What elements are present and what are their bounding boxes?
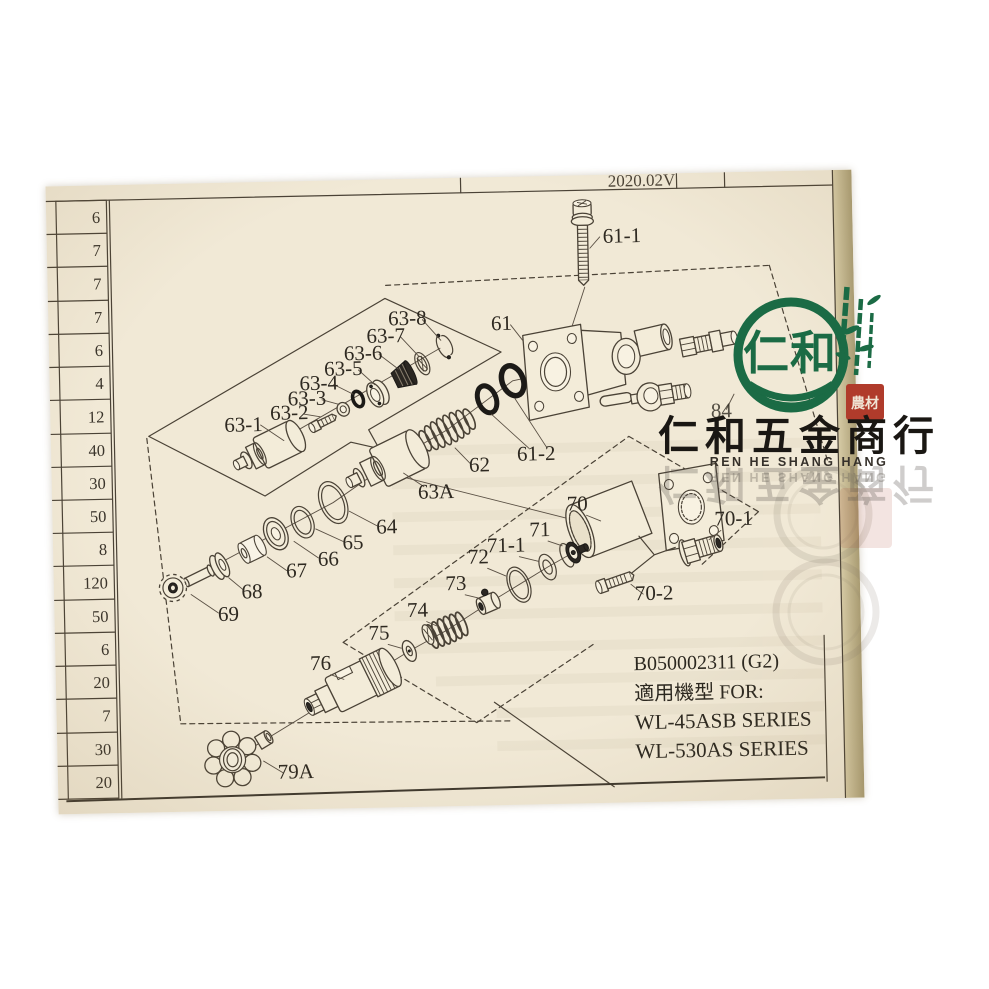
photo-vignette [46,170,865,815]
exploded-parts-diagram: 63-8 63-7 63-6 63-5 63-4 63-3 63-2 63-1 … [46,170,865,815]
scanned-parts-catalog-photo: 63-8 63-7 63-6 63-5 63-4 63-3 63-2 63-1 … [0,0,989,989]
catalog-page: 63-8 63-7 63-6 63-5 63-4 63-3 63-2 63-1 … [46,170,865,815]
